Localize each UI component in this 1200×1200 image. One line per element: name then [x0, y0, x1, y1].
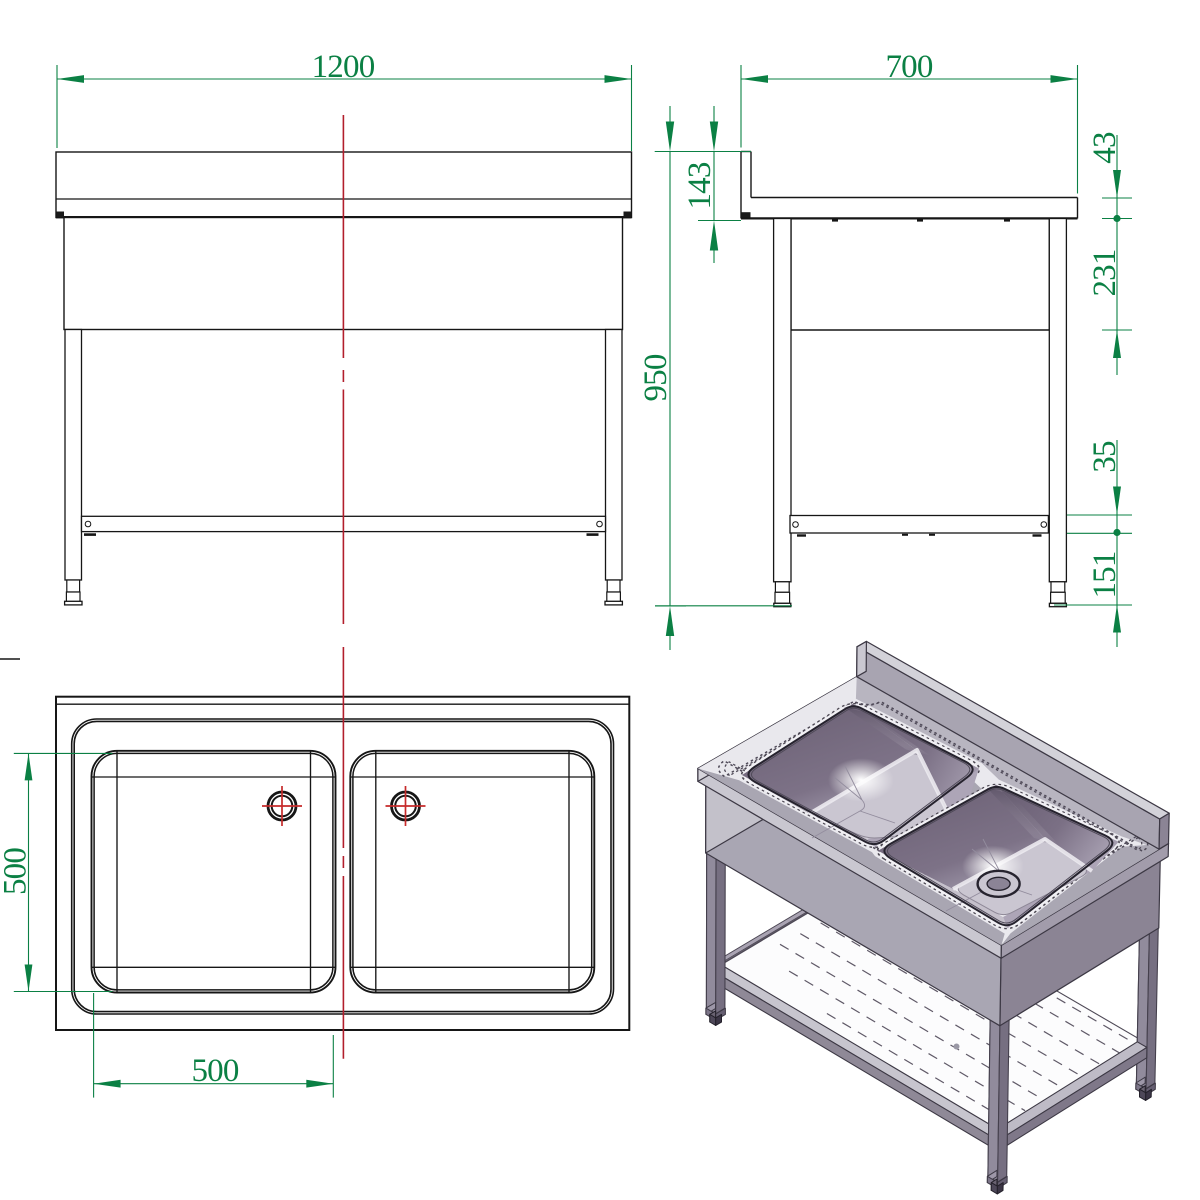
svg-text:43: 43 — [1087, 132, 1123, 164]
svg-text:700: 700 — [885, 49, 932, 85]
svg-text:231: 231 — [1087, 249, 1123, 296]
svg-text:35: 35 — [1087, 441, 1123, 473]
svg-text:500: 500 — [191, 1053, 238, 1089]
svg-text:500: 500 — [0, 848, 34, 895]
svg-text:950: 950 — [638, 354, 674, 401]
svg-text:1200: 1200 — [312, 49, 375, 85]
svg-text:143: 143 — [682, 162, 718, 209]
svg-text:151: 151 — [1087, 551, 1123, 598]
